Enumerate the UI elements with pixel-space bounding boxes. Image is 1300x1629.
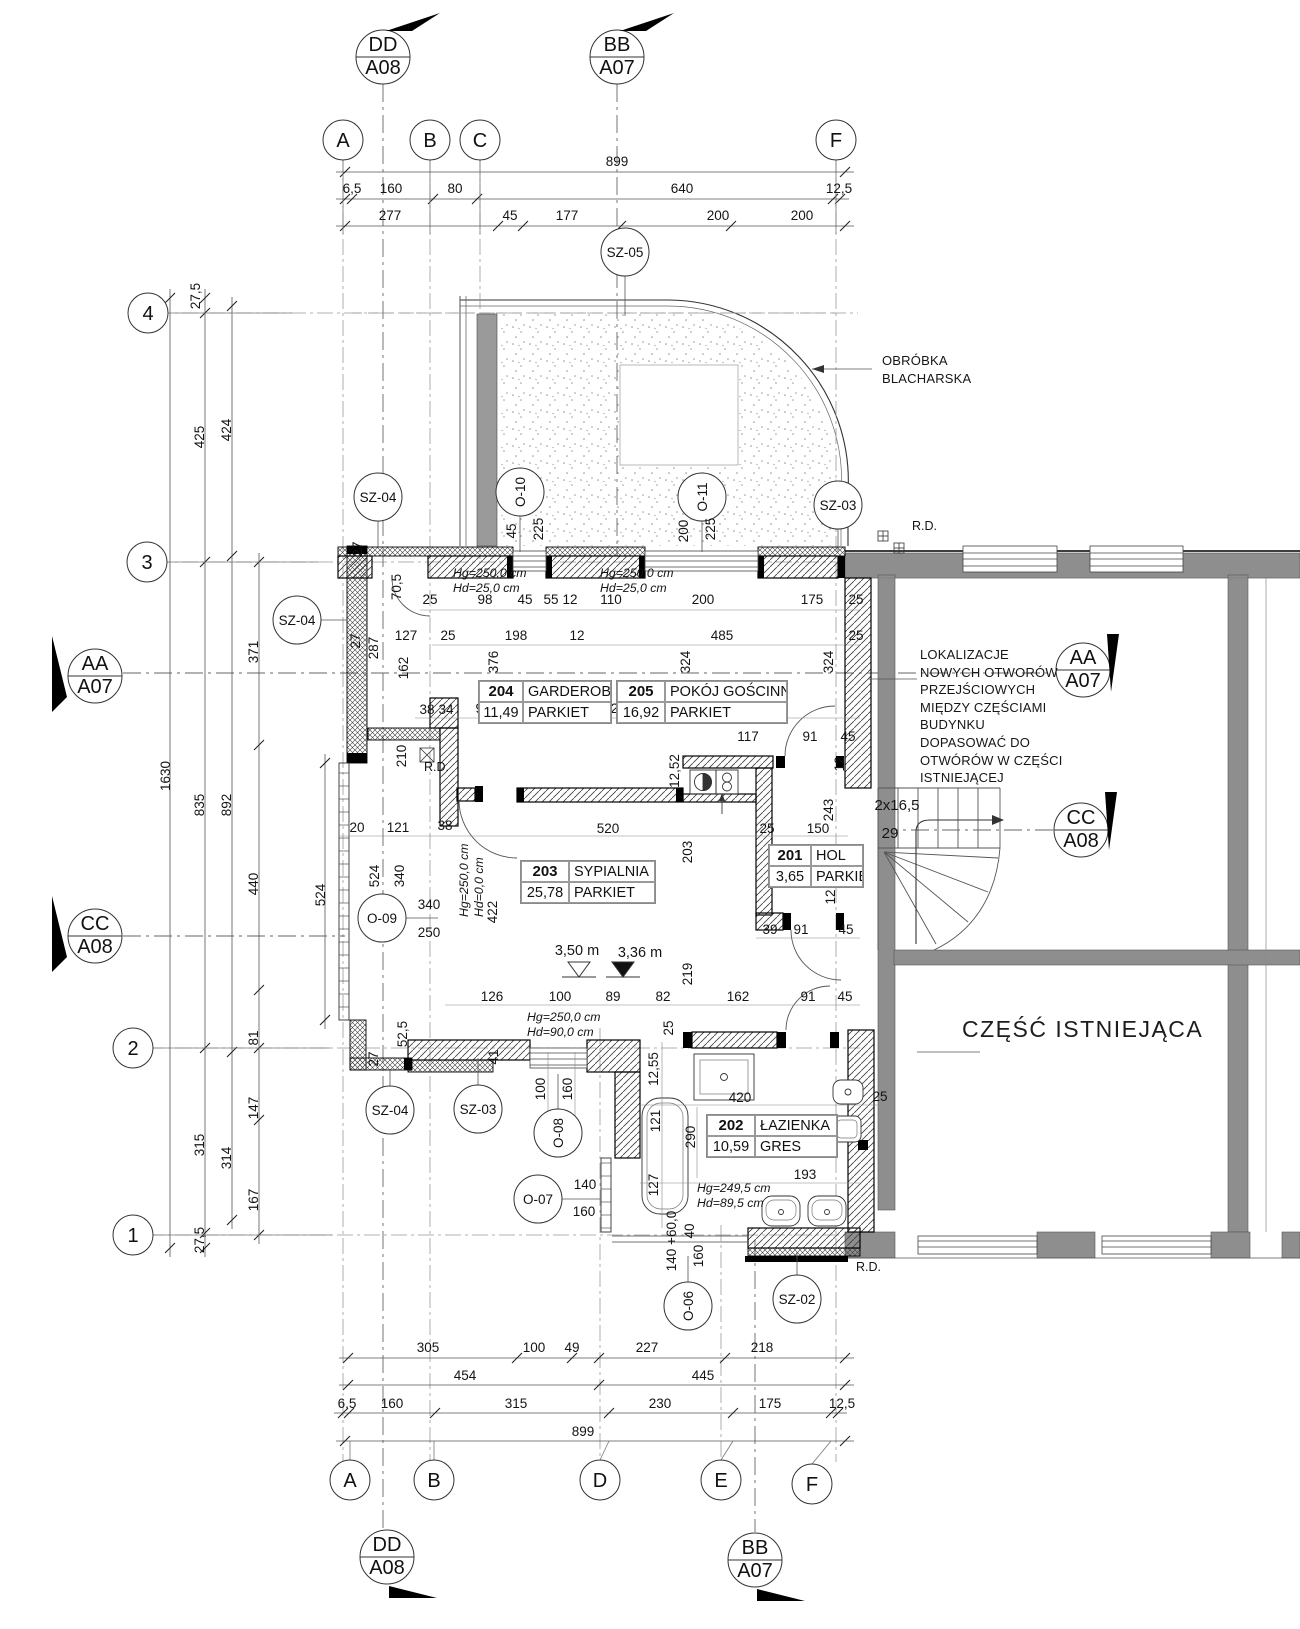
dimension-label: 27 <box>366 1051 381 1066</box>
grid-bubble-label: D <box>593 1470 607 1492</box>
grid-bubble-B: B <box>414 1460 454 1500</box>
dimension-label: 422 <box>485 901 500 924</box>
lokalizacje-note-line: DOPASOWAĆ DO <box>920 734 1063 752</box>
dimension-label: 127 <box>395 628 418 643</box>
room-floor: GRES <box>755 1136 837 1157</box>
grid-bubble-B: B <box>410 120 450 160</box>
dimension-label: 225 <box>703 518 718 541</box>
dimension-label: 27 <box>348 633 363 648</box>
section-marker-dd-bottom: DDA08 <box>360 1530 437 1598</box>
dimension-label: 20 <box>349 820 364 835</box>
section-marker-dd-top: DDA08 <box>356 13 440 84</box>
grid-bubble-label: B <box>427 1470 440 1492</box>
grid-bubble-A: A <box>330 1460 370 1500</box>
dimension-label: 140 <box>574 1177 597 1192</box>
dimension-label: 420 <box>729 1090 752 1105</box>
dimension-label: 45 <box>517 592 532 607</box>
grid-bubble-E: E <box>701 1460 741 1500</box>
dimension-label: 89 <box>605 989 620 1004</box>
floor-plan-canvas: DDA08BBA07AAA07CCA08AAA07CCA08DDA08BBA07… <box>0 0 1300 1629</box>
dimension-label: 27,5 <box>192 1227 207 1253</box>
section-marker-cc-left: CCA08 <box>52 896 122 972</box>
room-floor: PARKIET <box>569 882 655 903</box>
grid-bubble-label: E <box>714 1470 727 1492</box>
dimension-label: 305 <box>417 1340 440 1355</box>
room-name: GARDEROBA <box>523 681 611 702</box>
height-note: Hg=250,0 cm <box>527 1010 600 1024</box>
roof-lower-notch <box>620 365 738 465</box>
existing-wall-west <box>878 575 895 1210</box>
obrobka-note-line: OBRÓBKA <box>882 352 971 370</box>
marker-id: AA <box>1070 647 1097 669</box>
roof-drain-label: R.D. <box>424 760 449 774</box>
marker-id: DD <box>369 34 398 56</box>
grid-bubble-label: 3 <box>141 552 152 574</box>
dimension-label: 524 <box>367 864 382 887</box>
dimension-label: 230 <box>649 1396 672 1411</box>
marker-id: CC <box>81 913 110 935</box>
lokalizacje-note-line: LOKALIZACJE <box>920 646 1063 664</box>
section-marker-bb-top: BBA07 <box>590 13 674 84</box>
dimension-label: 12 <box>569 628 584 643</box>
dimension-label: 243 <box>821 799 836 822</box>
ref-circle-SZ-05: SZ-05 <box>601 228 649 316</box>
dimension-label: 45 <box>838 922 853 937</box>
dimension-label: 27 <box>350 541 365 556</box>
ref-circle-label: SZ-05 <box>607 245 644 260</box>
height-note: Hg=250,0 cm <box>457 844 471 917</box>
room-area: 10,59 <box>707 1136 755 1157</box>
dimension-label: 25 <box>422 592 437 607</box>
room-label-205: 205POKÓJ GOŚCINNY16,92PARKIET <box>616 680 788 724</box>
level-mark-icon <box>568 962 590 977</box>
dimension-label: 445 <box>692 1368 715 1383</box>
dimension-label: 55 <box>543 592 558 607</box>
room-floor: PARKIET <box>665 702 787 723</box>
dimension-label: 520 <box>597 821 620 836</box>
dimension-label: 200 <box>707 208 730 223</box>
ref-circle-label: O-09 <box>367 911 397 926</box>
ref-circle-label: SZ-02 <box>779 1292 816 1307</box>
dimension-label: 25 <box>759 821 774 836</box>
dimension-label: 12,52 <box>667 754 682 788</box>
existing-wall-internal <box>894 950 1300 965</box>
existing-wall-middle <box>1228 575 1248 1232</box>
marker-id: BB <box>742 1537 769 1559</box>
dimension-label: 70,5 <box>389 574 404 600</box>
dimension-label: 454 <box>454 1368 477 1383</box>
dimension-label: 485 <box>711 628 734 643</box>
marker-flag-icon <box>52 636 67 712</box>
dimension-label: 424 <box>219 418 234 441</box>
lokalizacje-note-line: MIĘDZY CZĘŚCIAMI <box>920 699 1063 717</box>
dimension-label: 100 <box>549 989 572 1004</box>
marker-sheet: A08 <box>365 57 401 79</box>
room-label-203: 203SYPIALNIA25,78PARKIET <box>520 860 656 904</box>
dimension-label: 225 <box>531 518 546 541</box>
dimension-label: 899 <box>572 1424 595 1439</box>
dimension-label: 160 <box>381 1396 404 1411</box>
marker-id: BB <box>604 34 631 56</box>
dimension-label: 210 <box>394 745 409 768</box>
section-marker-aa-right: AAA07 <box>1056 634 1119 697</box>
dimension-label: 175 <box>759 1396 782 1411</box>
dimension-label: 6,5 <box>343 181 362 196</box>
ref-circle-label: O-06 <box>681 1291 696 1321</box>
dimension-label: 160 <box>560 1078 575 1101</box>
roof-drain-label: R.D. <box>856 1260 881 1274</box>
grid-bubble-label: A <box>343 1470 357 1492</box>
room-area: 25,78 <box>521 882 569 903</box>
dimension-label: 12 <box>823 889 838 904</box>
obrobka-note: OBRÓBKABLACHARSKA <box>882 352 971 387</box>
dimension-label: 117 <box>737 729 759 744</box>
ref-circle-SZ-04: SZ-04 <box>366 1070 414 1134</box>
roof-drain-label: R.D. <box>912 519 937 533</box>
dimension-label: 38 <box>419 702 434 717</box>
dimension-label: 1630 <box>158 761 173 791</box>
dimension-label: 835 <box>192 794 207 817</box>
grid-bubble-A: A <box>323 120 363 160</box>
room-name: HOL <box>811 845 863 866</box>
stairs-riser-label: 2x16,5 <box>874 797 919 814</box>
lokalizacje-note-line: OTWÓRÓW W CZĘŚCI <box>920 752 1063 770</box>
room-label-201: 201HOL3,65PARKIET <box>768 844 864 888</box>
dimension-label: 25 <box>872 1089 887 1104</box>
stairs-direction-arrow <box>916 820 992 944</box>
grid-bubble-3: 3 <box>127 542 167 582</box>
dimension-label: 45 <box>840 729 855 744</box>
dimension-label: 25 <box>661 1020 676 1035</box>
dimension-label: 200 <box>676 520 691 543</box>
height-note: Hd=25,0 cm <box>600 581 667 595</box>
wall-south <box>408 1040 530 1060</box>
room-floor: PARKIET <box>523 702 611 723</box>
section-markers-layer: DDA08BBA07AAA07CCA08AAA07CCA08DDA08BBA07 <box>52 13 1119 1601</box>
grid-bubble-label: C <box>473 130 487 152</box>
lokalizacje-note-line: PRZEJŚCIOWYCH <box>920 681 1063 699</box>
dimension-label: 167 <box>246 1189 261 1212</box>
height-note: Hd=0,0 cm <box>472 857 486 917</box>
marker-sheet: A08 <box>369 1557 405 1579</box>
level-mark-value: 3,50 m <box>555 943 599 959</box>
marker-sheet: A07 <box>1065 670 1101 692</box>
room-floor: PARKIET <box>811 866 863 887</box>
dimension-label: 290 <box>683 1126 698 1149</box>
dimension-label: 219 <box>680 963 695 986</box>
dimension-label: 324 <box>678 650 693 673</box>
room-area: 11,49 <box>479 702 523 723</box>
room-number: 202 <box>707 1115 755 1136</box>
dimension-label: 45 <box>504 523 519 538</box>
dimension-label: 100 <box>533 1078 548 1101</box>
dimension-label: 324 <box>821 650 836 673</box>
dimension-label: 340 <box>392 865 407 888</box>
grid-bubble-label: 4 <box>142 303 153 325</box>
shaft-pillar <box>440 728 458 826</box>
wall-sypialnia-north <box>517 788 683 802</box>
dimension-label: 91 <box>802 729 817 744</box>
dimension-label: 314 <box>219 1146 234 1169</box>
grid-bubble-4: 4 <box>128 293 168 333</box>
dimension-label: 892 <box>219 794 234 817</box>
dimension-label: 376 <box>486 651 501 674</box>
marker-flag-icon <box>386 13 440 31</box>
ref-circle-label: O-10 <box>513 477 528 507</box>
dimension-label: 287 <box>366 637 381 660</box>
height-note: Hd=90,0 cm <box>527 1025 594 1039</box>
room-number: 201 <box>769 845 811 866</box>
dimension-label: 371 <box>246 641 261 664</box>
dimension-label: 203 <box>680 841 695 864</box>
room-name: ŁAZIENKA <box>755 1115 837 1136</box>
stairs-count-label: 29 <box>882 825 899 842</box>
dimension-label: 175 <box>801 592 824 607</box>
marker-id: AA <box>82 653 109 675</box>
wall-lazienka-south <box>748 1228 860 1248</box>
dimension-label: 162 <box>727 989 750 1004</box>
marker-id: DD <box>373 1534 402 1556</box>
ref-circle-label: O-11 <box>695 482 710 511</box>
terrace-roof <box>352 296 848 546</box>
dimension-label: 150 <box>807 821 830 836</box>
grid-bubble-1: 1 <box>113 1215 153 1255</box>
ref-circle-label: O-07 <box>523 1192 553 1207</box>
ref-circle-SZ-04: SZ-04 <box>273 596 347 644</box>
dimension-label: 45 <box>837 989 852 1004</box>
dimension-label: 315 <box>192 1134 207 1157</box>
grid-bubble-label: 2 <box>127 1038 138 1060</box>
dimension-label: 52,5 <box>395 1021 410 1047</box>
dimension-label: 45 <box>502 208 517 223</box>
dimension-label: 80 <box>447 181 462 196</box>
room-area: 3,65 <box>769 866 811 887</box>
height-note: Hd=25,0 cm <box>453 581 520 595</box>
dimension-label: 91 <box>800 989 815 1004</box>
grid-bubble-F: F <box>792 1464 832 1504</box>
dimension-label: 218 <box>751 1340 774 1355</box>
dimension-label: 6,5 <box>338 1396 357 1411</box>
height-note: Hg=250,0 cm <box>600 566 673 580</box>
lokalizacje-note-line: BUDYNKU <box>920 716 1063 734</box>
dimension-label: 12,5 <box>826 181 852 196</box>
dimension-label: 27,5 <box>188 283 203 309</box>
dimension-label: 250 <box>418 925 441 940</box>
dimension-label: 49 <box>564 1340 579 1355</box>
dimension-label: 198 <box>505 628 528 643</box>
marker-flag-icon <box>52 896 67 972</box>
level-mark-value: 3,36 m <box>618 945 662 961</box>
dimension-label: 25 <box>440 628 455 643</box>
dimension-label: 91 <box>793 922 808 937</box>
dimension-label: 12 <box>562 592 577 607</box>
marker-flag-icon <box>620 13 674 31</box>
ref-circle-label: SZ-03 <box>460 1102 497 1117</box>
dimension-label: 524 <box>313 883 328 906</box>
boiler-unit <box>690 770 738 814</box>
dimension-label: 121 <box>387 820 410 835</box>
room-area: 16,92 <box>617 702 665 723</box>
room-number: 205 <box>617 681 665 702</box>
window-wall-west <box>339 763 349 1020</box>
marker-flag-icon <box>757 1589 805 1601</box>
obrobka-note-line: BLACHARSKA <box>882 370 971 388</box>
dimension-label: 81 <box>246 1030 261 1045</box>
marker-sheet: A07 <box>737 1560 773 1582</box>
dimension-label: 34 <box>438 702 454 717</box>
grid-bubble-F: F <box>816 120 856 160</box>
ref-circle-SZ-04: SZ-04 <box>354 473 402 547</box>
dimension-label: 899 <box>606 154 629 169</box>
dimension-label: 100 <box>523 1340 546 1355</box>
lokalizacje-note-line: NOWYCH OTWORÓW <box>920 664 1063 682</box>
existing-wall-north <box>845 553 1300 578</box>
dimension-label: 425 <box>192 426 207 449</box>
dimension-label: 12 <box>832 756 847 771</box>
ref-circle-label: SZ-03 <box>820 498 857 513</box>
room-name: SYPIALNIA <box>569 861 655 882</box>
grid-bubble-label: F <box>806 1474 818 1496</box>
grid-bubble-label: B <box>423 130 436 152</box>
dimension-label: 12,55 <box>646 1052 661 1086</box>
section-marker-bb-bottom: BBA07 <box>728 1533 805 1601</box>
dimension-label: 12,5 <box>829 1396 855 1411</box>
dimension-label: 126 <box>481 989 504 1004</box>
wall-north <box>758 556 838 578</box>
dimension-label: 147 <box>246 1097 261 1120</box>
dimension-label: 440 <box>246 873 261 896</box>
dimension-label: 25 <box>848 628 863 643</box>
height-note: Hg=249,5 cm <box>697 1181 770 1195</box>
wall-hol-west <box>756 768 772 915</box>
lokalizacje-note-line: ISTNIEJĄCEJ <box>920 769 1063 787</box>
ref-circle-SZ-02: SZ-02 <box>773 1252 821 1323</box>
dimension-label: 162 <box>396 657 411 680</box>
room-label-204: 204GARDEROBA11,49PARKIET <box>478 680 612 724</box>
section-marker-cc-right: CCA08 <box>1054 792 1117 857</box>
door-arc-hol-south <box>791 930 841 980</box>
ref-circle-label: SZ-04 <box>279 613 316 628</box>
dimension-label: 340 <box>418 897 441 912</box>
grid-bubble-label: A <box>336 130 350 152</box>
room-label-202: 202ŁAZIENKA10,59GRES <box>706 1114 838 1158</box>
lokalizacje-note: LOKALIZACJENOWYCH OTWORÓWPRZEJŚCIOWYCHMI… <box>920 646 1063 787</box>
dimension-label: 38 <box>437 818 452 833</box>
section-marker-aa-left: AAA07 <box>52 636 122 712</box>
room-number: 204 <box>479 681 523 702</box>
dimension-label: 277 <box>379 208 402 223</box>
dimension-label: 177 <box>556 208 579 223</box>
ref-circle-label: SZ-04 <box>372 1103 409 1118</box>
dimension-label: 200 <box>791 208 814 223</box>
grid-bubble-label: F <box>830 130 842 152</box>
level-mark-icon <box>612 962 634 977</box>
marker-sheet: A08 <box>1063 830 1099 852</box>
dimension-label: 40 <box>682 1223 697 1238</box>
dimension-label: 82 <box>655 989 670 1004</box>
dimension-label: 315 <box>505 1396 528 1411</box>
ref-circle-label: SZ-04 <box>360 490 397 505</box>
marker-sheet: A07 <box>599 57 635 79</box>
existing-part-label: CZĘŚĆ ISTNIEJĄCA <box>962 1016 1203 1043</box>
grid-bubble-label: 1 <box>127 1225 138 1247</box>
marker-sheet: A07 <box>77 676 113 698</box>
marker-flag-icon <box>389 1586 437 1598</box>
marker-id: CC <box>1067 807 1096 829</box>
dimension-label: 25 <box>848 592 863 607</box>
room-number: 203 <box>521 861 569 882</box>
dimension-label: 160 <box>691 1245 706 1268</box>
dimension-label: 200 <box>692 592 715 607</box>
marker-sheet: A08 <box>77 936 113 958</box>
grid-bubble-C: C <box>460 120 500 160</box>
dimension-label: 227 <box>636 1340 659 1355</box>
room-name: POKÓJ GOŚCINNY <box>665 681 787 702</box>
height-note: Hd=89,5 cm <box>697 1196 764 1210</box>
grid-bubble-D: D <box>580 1460 620 1500</box>
dimension-label: 127 <box>646 1174 661 1197</box>
grid-bubble-2: 2 <box>113 1028 153 1068</box>
dimension-label: 121 <box>648 1110 663 1133</box>
dimension-label: 41 <box>486 1049 501 1064</box>
height-note: Hg=250,0 cm <box>453 566 526 580</box>
dimension-label: 160 <box>380 181 403 196</box>
dimension-label: 640 <box>671 181 694 196</box>
dimension-label: 193 <box>794 1167 817 1182</box>
dimension-label: 160 <box>573 1204 596 1219</box>
dimension-label: 39 <box>762 922 777 937</box>
ref-circle-label: O-08 <box>551 1118 566 1148</box>
wall-east-upper <box>845 578 871 788</box>
window-wall-lazienka <box>601 1158 611 1232</box>
floor-plan-drawing: DDA08BBA07AAA07CCA08AAA07CCA08DDA08BBA07… <box>0 0 1300 1629</box>
wall-lazienka-north <box>692 1032 777 1048</box>
dimension-label: 140 +60,0 <box>664 1211 679 1271</box>
